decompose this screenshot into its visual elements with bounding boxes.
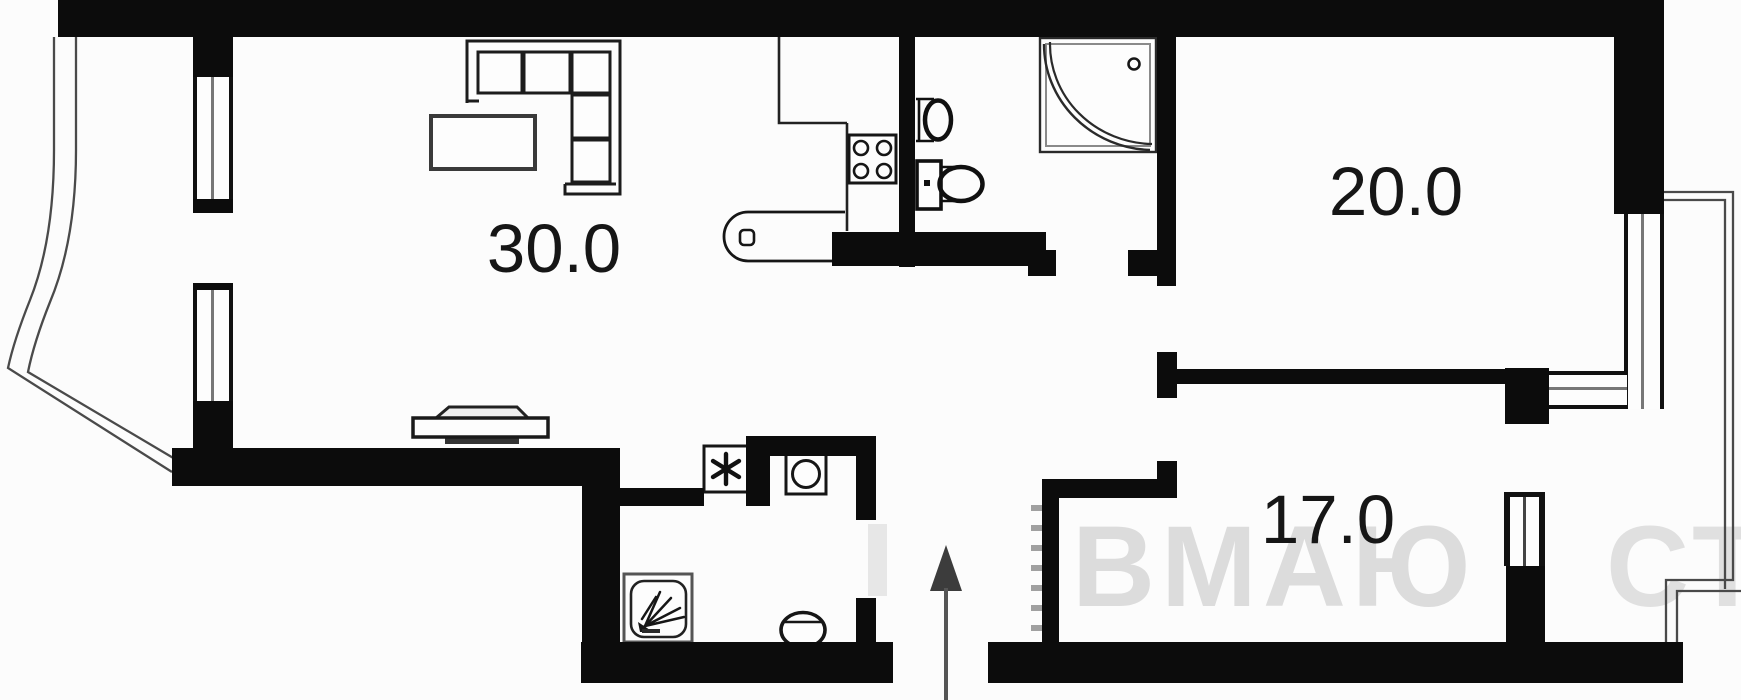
- svg-text:17.0: 17.0: [1261, 481, 1395, 558]
- svg-text:30.0: 30.0: [487, 210, 621, 287]
- svg-text:СТ: СТ: [1606, 503, 1741, 631]
- svg-text:20.0: 20.0: [1329, 153, 1463, 230]
